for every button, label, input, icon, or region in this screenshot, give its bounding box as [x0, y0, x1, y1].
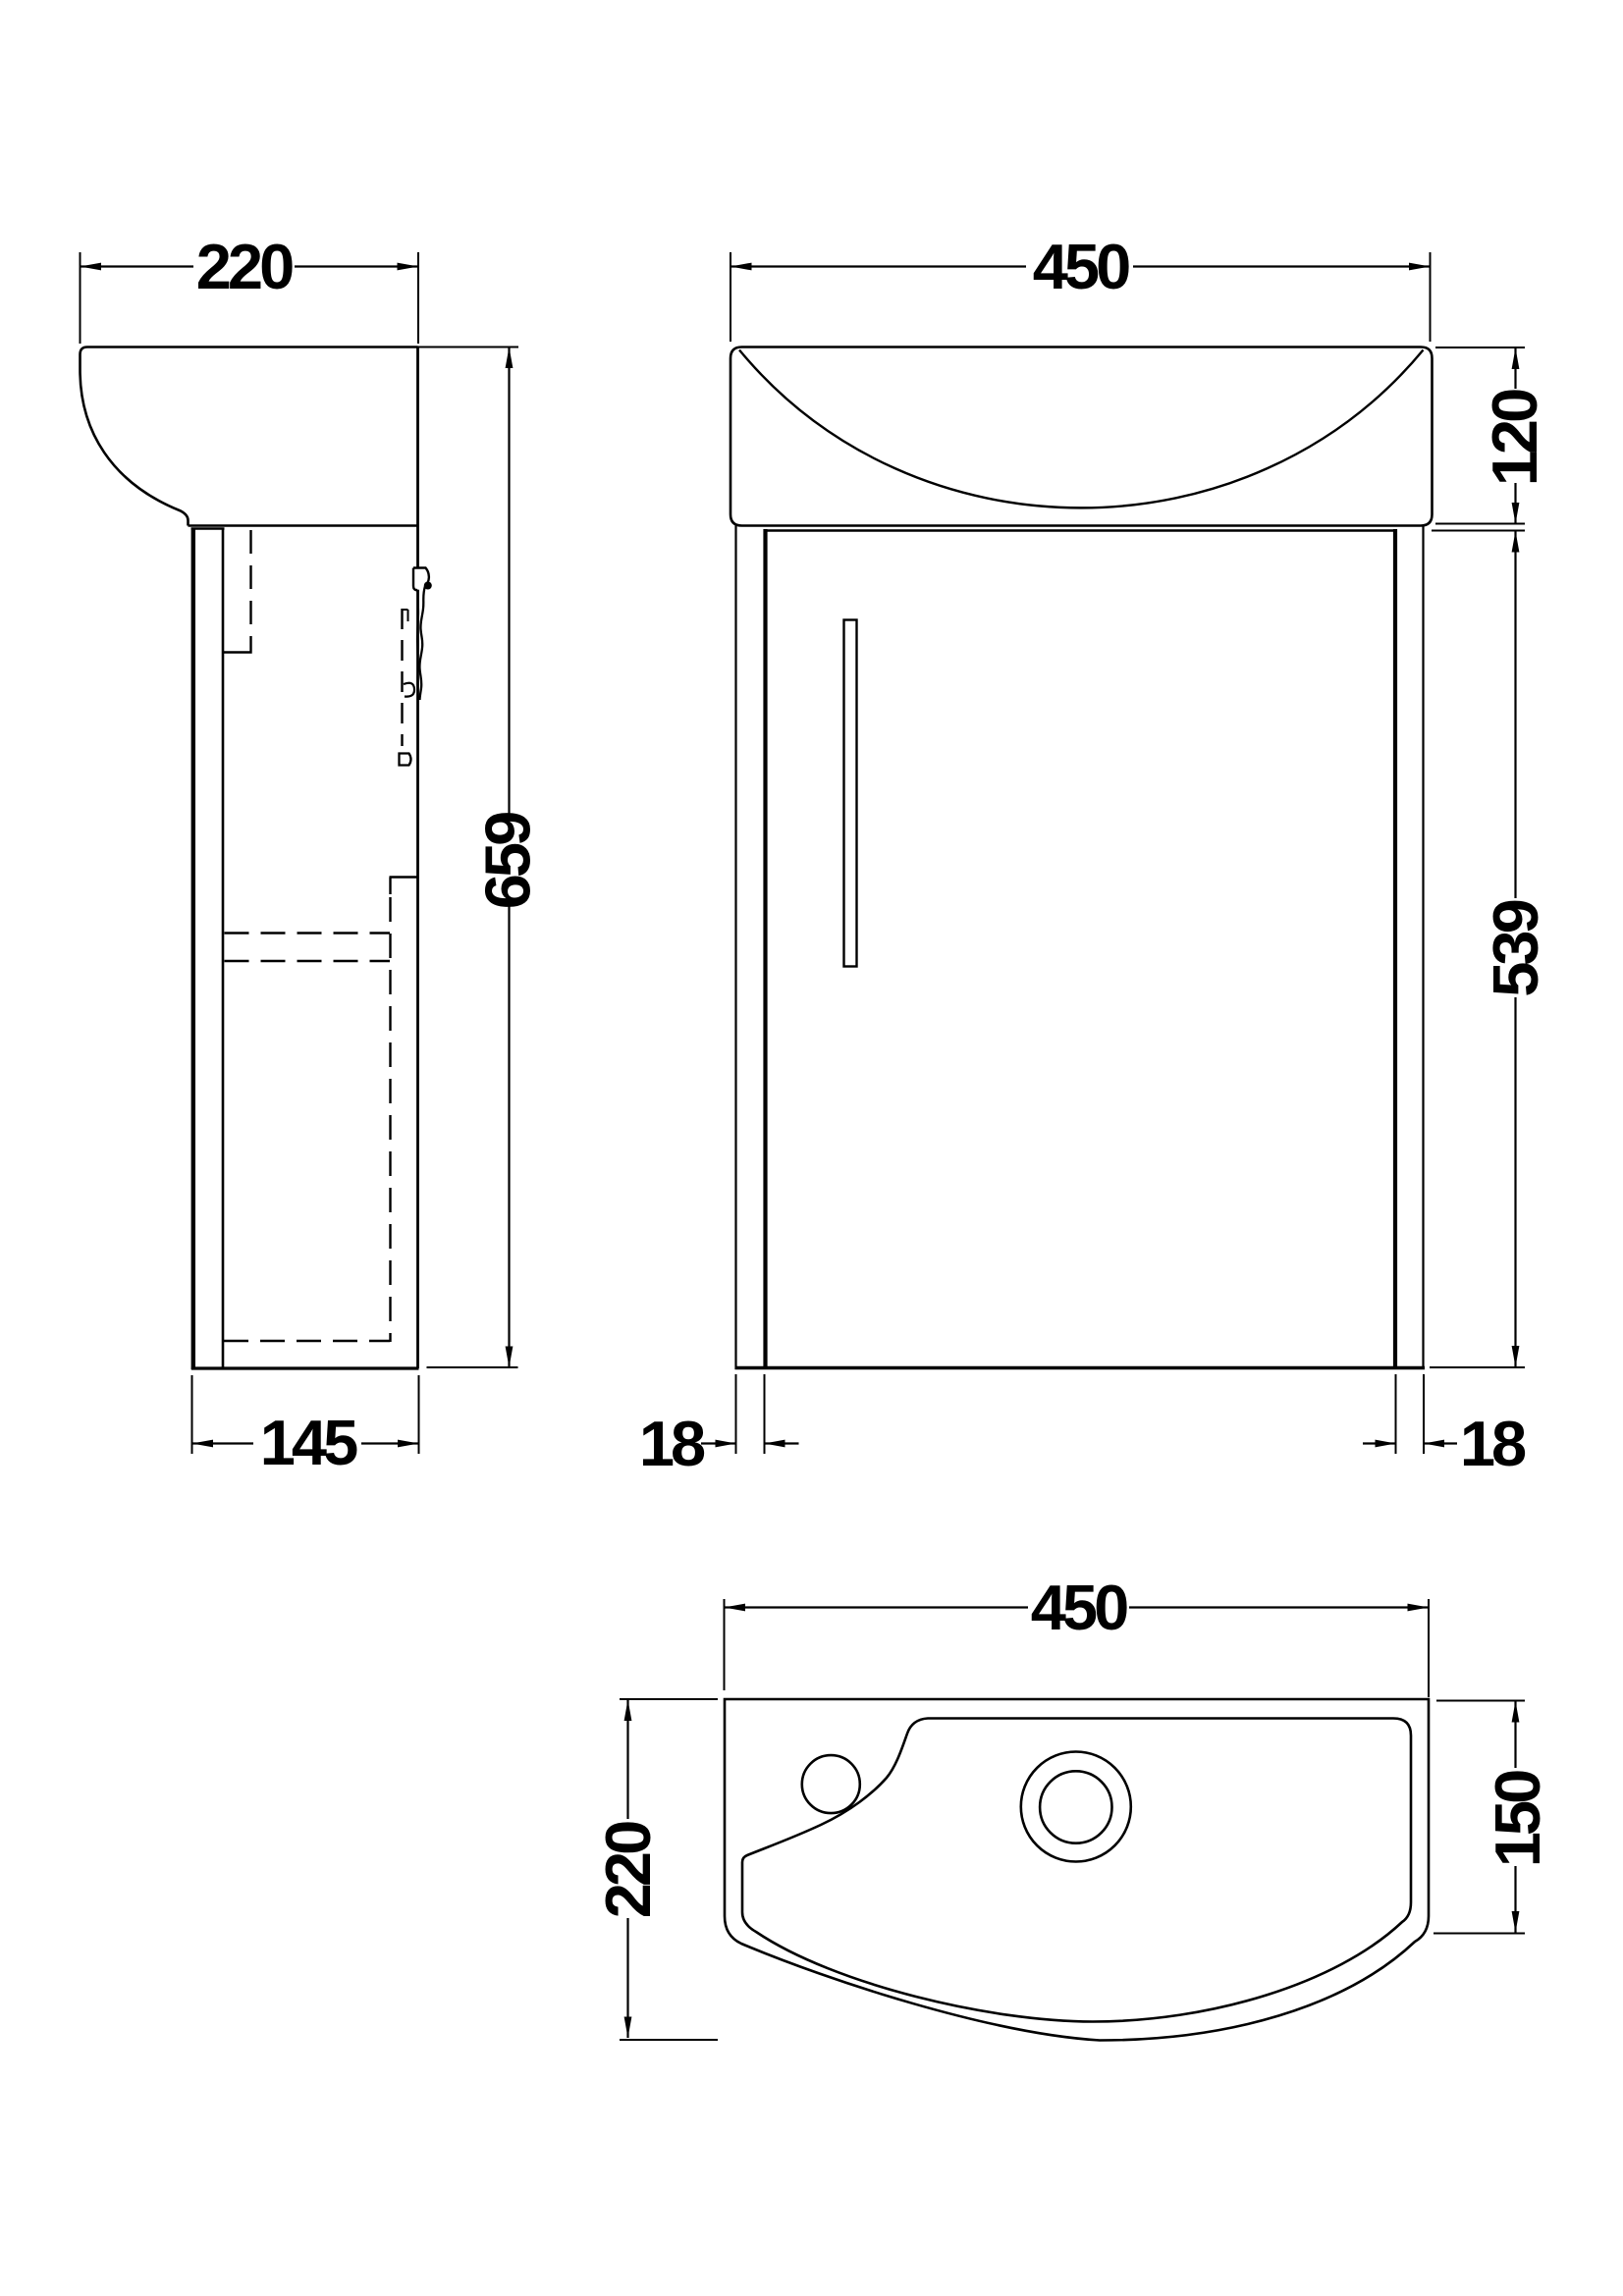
svg-text:145: 145	[260, 1407, 357, 1478]
svg-text:539: 539	[1480, 900, 1551, 996]
svg-text:659: 659	[472, 813, 544, 909]
svg-text:18: 18	[639, 1408, 705, 1479]
svg-text:150: 150	[1482, 1771, 1553, 1867]
svg-text:18: 18	[1460, 1408, 1526, 1479]
svg-text:450: 450	[1031, 1572, 1127, 1643]
svg-text:220: 220	[592, 1822, 664, 1918]
svg-text:120: 120	[1479, 390, 1550, 486]
svg-text:220: 220	[196, 231, 293, 302]
svg-text:450: 450	[1033, 231, 1129, 302]
